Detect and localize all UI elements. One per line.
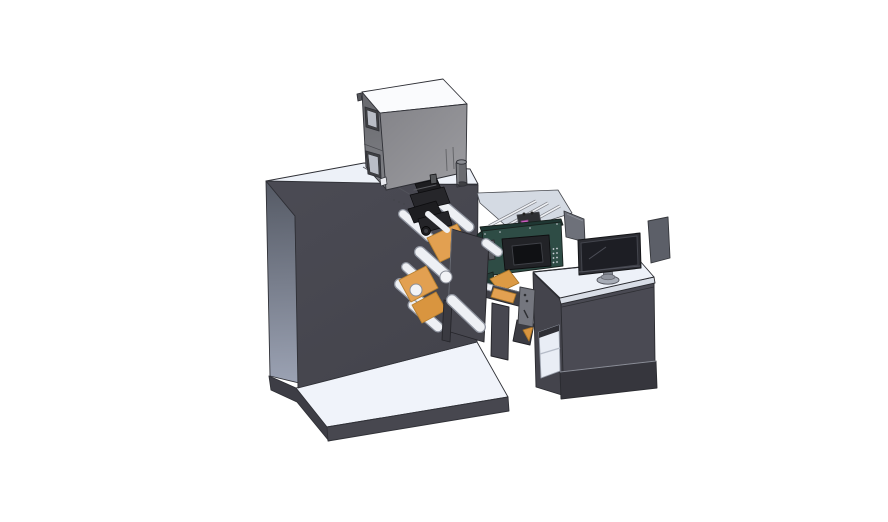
enclosure-knob2 — [531, 212, 534, 215]
enclosure-knob — [523, 213, 526, 216]
roller-endcap2 — [410, 284, 422, 296]
arm-handle[interactable] — [518, 287, 535, 327]
head-post — [430, 174, 437, 184]
head-knob-center — [424, 229, 428, 233]
cabinet-hinge — [357, 93, 362, 101]
operator-desk — [533, 261, 657, 399]
roller-endcap — [440, 271, 452, 283]
arm-support-column — [491, 303, 509, 360]
filter-cylinder — [456, 160, 467, 187]
electrical-cabinet — [357, 79, 467, 190]
handle-dot — [524, 294, 527, 297]
cylinder-cap-top — [457, 160, 467, 164]
handle-body[interactable] — [518, 287, 535, 327]
cabinet-label-plate — [380, 177, 387, 186]
cabinet-window-glass — [367, 110, 377, 128]
machine-render — [0, 0, 888, 522]
monitor-base-top — [601, 274, 615, 280]
hmi-screen — [512, 243, 543, 265]
handle-dot2 — [526, 300, 529, 303]
cad-viewport — [0, 0, 888, 522]
divider-panel-right — [648, 217, 670, 263]
